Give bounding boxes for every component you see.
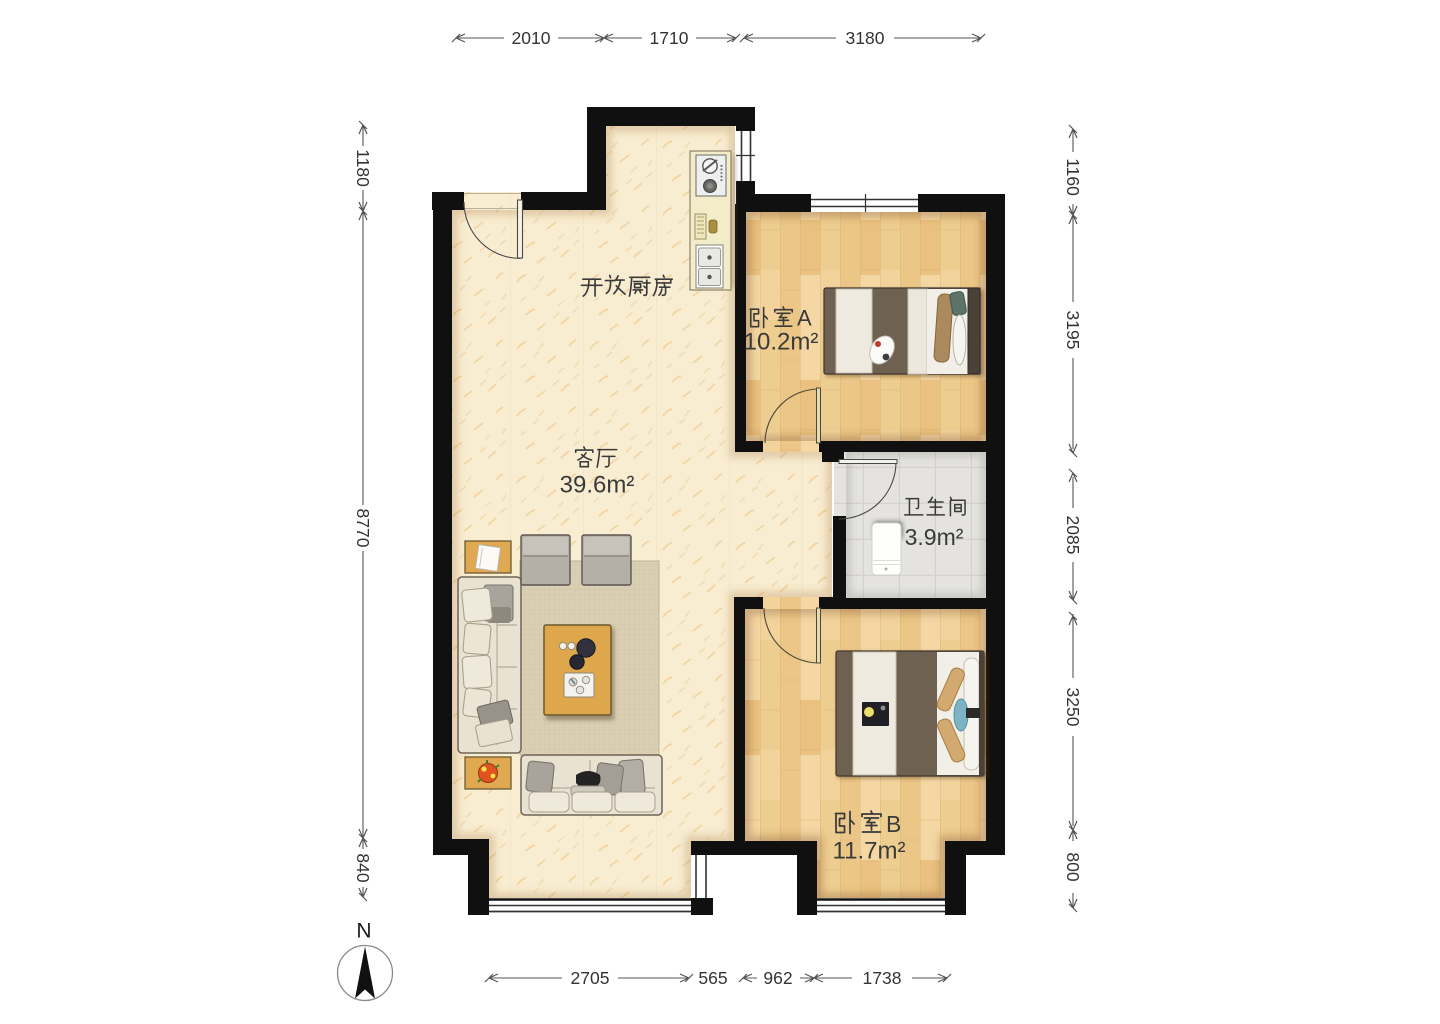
svg-text:11.7m²: 11.7m² — [833, 838, 906, 865]
svg-text:565: 565 — [698, 968, 727, 988]
svg-text:3.9m²: 3.9m² — [905, 524, 964, 550]
svg-text:10.2m²: 10.2m² — [744, 329, 819, 356]
svg-text:3195: 3195 — [1063, 311, 1083, 350]
svg-text:1710: 1710 — [650, 28, 689, 48]
svg-text:A: A — [797, 306, 812, 331]
svg-text:2010: 2010 — [512, 28, 551, 48]
svg-text:962: 962 — [763, 968, 792, 988]
svg-text:1160: 1160 — [1063, 158, 1083, 196]
svg-text:800: 800 — [1063, 852, 1083, 881]
svg-text:3180: 3180 — [846, 28, 885, 48]
svg-text:3250: 3250 — [1063, 688, 1083, 727]
svg-text:N: N — [356, 920, 371, 943]
svg-text:1738: 1738 — [863, 968, 902, 988]
svg-text:2705: 2705 — [571, 968, 610, 988]
svg-text:1180: 1180 — [353, 149, 373, 187]
svg-text:840: 840 — [353, 853, 373, 882]
svg-text:8770: 8770 — [353, 509, 373, 548]
svg-text:39.6m²: 39.6m² — [560, 472, 635, 499]
svg-text:2085: 2085 — [1063, 516, 1083, 555]
svg-text:B: B — [886, 811, 901, 837]
